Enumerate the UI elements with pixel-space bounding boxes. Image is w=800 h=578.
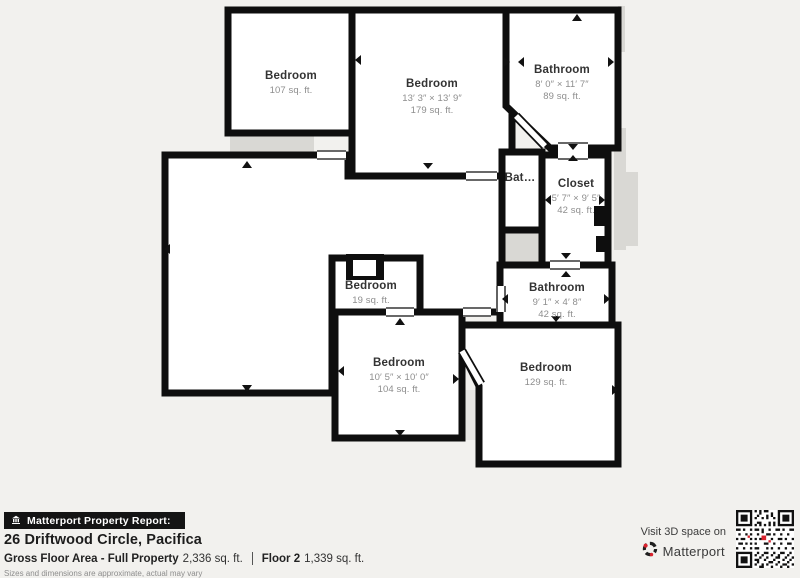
room-label-closet: Closet 5′ 7″ × 9′ 5″ 42 sq. ft. [552,178,601,217]
floorplan: Bedroom 107 sq. ft. Bedroom 13′ 3″ × 13′… [0,0,800,505]
room-name: Bedroom [369,357,429,371]
matterport-brand-row: Matterport [641,541,726,562]
room-name: Closet [552,178,601,192]
property-address: 26 Driftwood Circle, Pacifica [4,532,202,548]
room-dims: 10′ 5″ × 10′ 0″ [369,372,429,383]
matterport-logo-icon [642,541,658,562]
stats-divider [252,552,253,565]
visit-3d-block: Visit 3D space on Matterport [641,526,726,562]
building-icon [11,512,21,530]
room-dims: 9′ 1″ × 4′ 8″ [529,297,585,308]
room-name: Bedroom [345,280,397,294]
floor-label: Floor 2 [262,553,300,565]
room-label-bathroom-42: Bathroom 9′ 1″ × 4′ 8″ 42 sq. ft. [529,282,585,321]
room-label-bedroom-107: Bedroom 107 sq. ft. [265,70,317,96]
bedroom-129-outline [462,325,618,464]
room-dims: 8′ 0″ × 11′ 7″ [534,79,590,90]
room-label-bathroom-truncated: Bat… [505,172,536,186]
gross-area-value: 2,336 sq. ft. [183,553,243,565]
report-footer: Matterport Property Report: 26 Driftwood… [0,505,800,577]
room-name: Bedroom [265,70,317,84]
bathroom-small-outline [502,152,542,230]
floor-value: 1,339 sq. ft. [304,553,364,565]
room-area: 42 sq. ft. [552,205,601,216]
room-area: 89 sq. ft. [534,91,590,102]
room-name: Bathroom [534,64,590,78]
room-name: Bedroom [520,362,572,376]
room-area: 179 sq. ft. [402,105,462,116]
room-label-bedroom-19: Bedroom 19 sq. ft. [345,280,397,306]
qr-code [736,510,794,568]
room-label-bedroom-179: Bedroom 13′ 3″ × 13′ 9″ 179 sq. ft. [402,78,462,117]
report-banner-label: Matterport Property Report: [27,515,171,527]
room-area: 19 sq. ft. [345,295,397,306]
room-name: Bedroom [402,78,462,92]
floorplan-report-page: { "floorplan": { "rooms": [ {"name": "Be… [0,0,800,577]
room-label-bathroom-89: Bathroom 8′ 0″ × 11′ 7″ 89 sq. ft. [534,64,590,103]
gross-area-label: Gross Floor Area - Full Property [4,553,179,565]
room-name: Bat… [505,172,536,186]
room-dims: 5′ 7″ × 9′ 5″ [552,193,601,204]
room-area: 107 sq. ft. [265,85,317,96]
floor-area-stats: Gross Floor Area - Full Property 2,336 s… [4,552,364,565]
visit-3d-label: Visit 3D space on [641,526,726,538]
report-banner: Matterport Property Report: [4,512,185,529]
room-dims: 13′ 3″ × 13′ 9″ [402,93,462,104]
floorplan-walls-drawing [0,0,800,505]
room-label-bedroom-129: Bedroom 129 sq. ft. [520,362,572,388]
matterport-wordmark: Matterport [663,544,725,559]
room-label-bedroom-104: Bedroom 10′ 5″ × 10′ 0″ 104 sq. ft. [369,357,429,396]
room-area: 129 sq. ft. [520,377,572,388]
room-name: Bathroom [529,282,585,296]
room-area: 42 sq. ft. [529,309,585,320]
room-area: 104 sq. ft. [369,384,429,395]
